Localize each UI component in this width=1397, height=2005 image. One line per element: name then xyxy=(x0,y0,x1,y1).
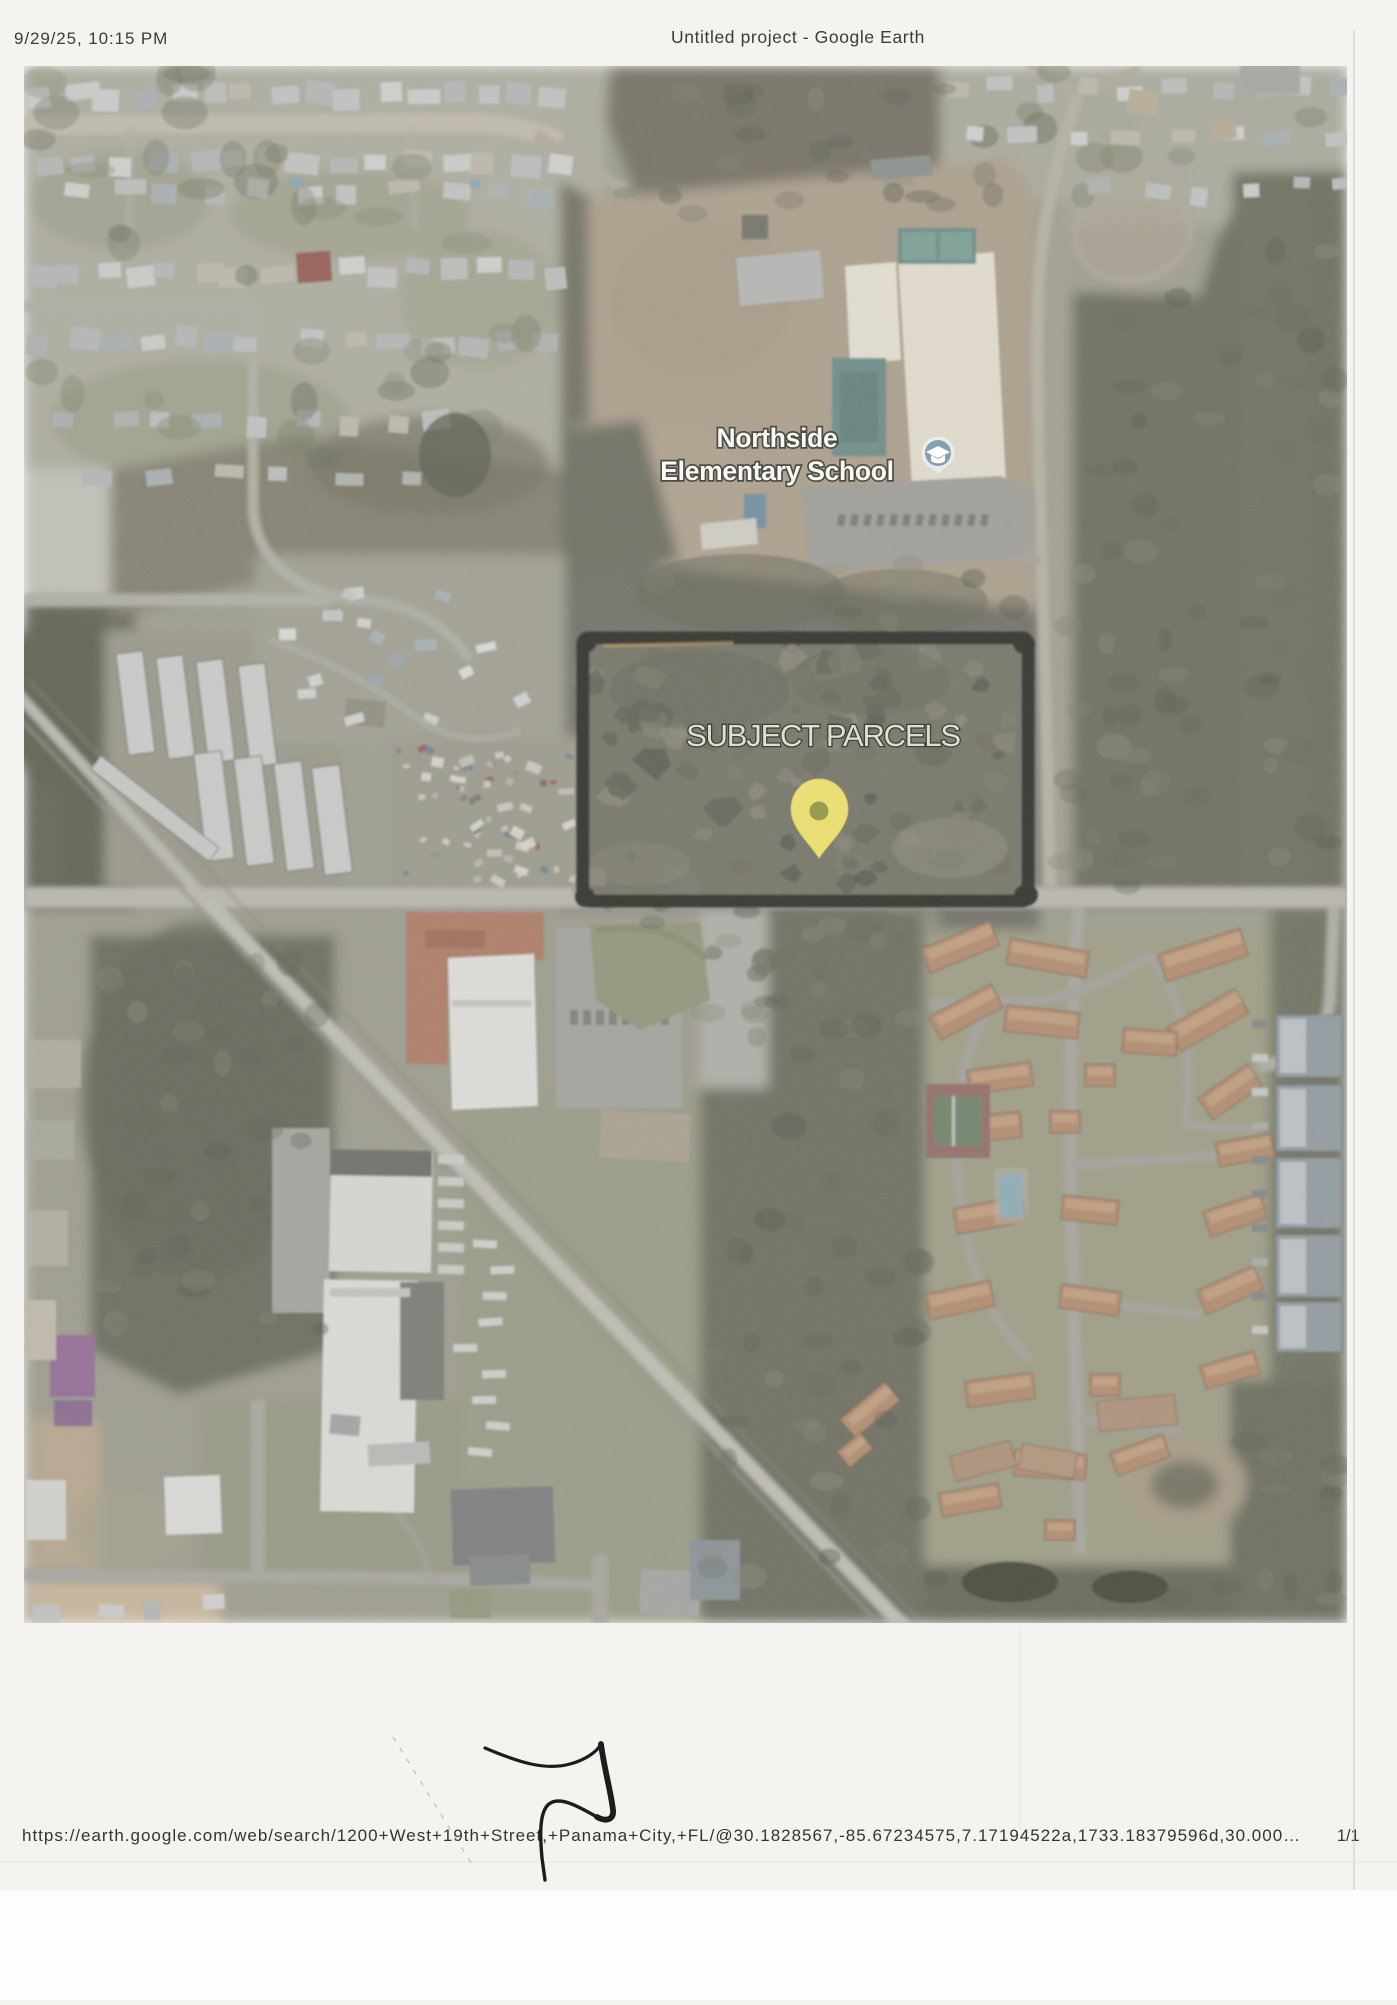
svg-text:Untitled project - Google Eart: Untitled project - Google Earth xyxy=(671,27,925,47)
svg-text:1/1: 1/1 xyxy=(1337,1827,1360,1845)
svg-text:https://earth.google.com/web/s: https://earth.google.com/web/search/1200… xyxy=(22,1826,1301,1845)
svg-text:9/29/25, 10:15 PM: 9/29/25, 10:15 PM xyxy=(14,29,168,48)
svg-text:Elementary School: Elementary School xyxy=(660,456,893,486)
svg-text:Northside: Northside xyxy=(717,423,838,453)
svg-text:SUBJECT PARCELS: SUBJECT PARCELS xyxy=(686,718,960,753)
